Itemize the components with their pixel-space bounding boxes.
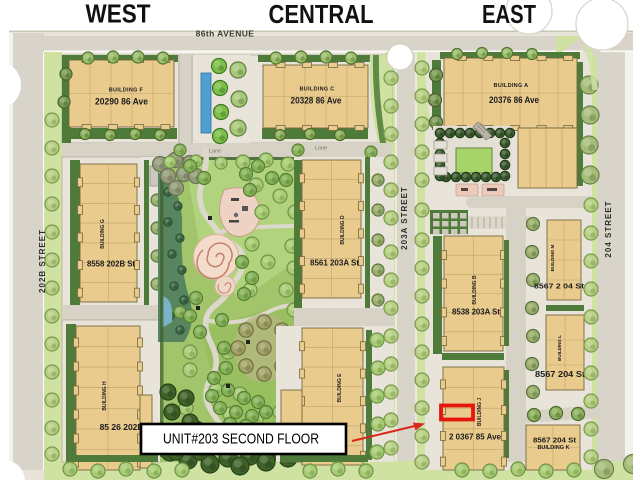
- svg-text:20328 86 Ave: 20328 86 Ave: [291, 96, 342, 107]
- svg-text:Lane: Lane: [315, 146, 327, 152]
- svg-text:BUILDING D: BUILDING D: [340, 215, 346, 245]
- svg-text:Lane: Lane: [209, 149, 221, 155]
- svg-text:8558 202B St: 8558 202B St: [87, 259, 135, 269]
- svg-text:BUILDING G: BUILDING G: [100, 219, 106, 249]
- svg-text:8538 203A St: 8538 203A St: [452, 307, 500, 317]
- svg-text:BUILDING C: BUILDING C: [299, 87, 334, 93]
- svg-text:BUILDING L: BUILDING L: [557, 335, 562, 361]
- svg-text:BUILDING B: BUILDING B: [472, 275, 478, 305]
- svg-text:20376 86 Ave: 20376 86 Ave: [489, 95, 539, 106]
- svg-text:BUILDING H: BUILDING H: [102, 381, 108, 411]
- svg-text:BUILDING J: BUILDING J: [477, 398, 483, 427]
- svg-text:203A STREET: 203A STREET: [400, 186, 409, 250]
- svg-text:8567 2 04 St: 8567 2 04 St: [534, 282, 585, 291]
- svg-text:UNIT#203 SECOND FLOOR: UNIT#203 SECOND FLOOR: [163, 431, 319, 448]
- svg-text:202B STREET: 202B STREET: [38, 229, 47, 293]
- svg-text:204 STREET: 204 STREET: [604, 200, 613, 257]
- svg-text:BUILDING E: BUILDING E: [337, 373, 343, 403]
- svg-text:BUILDING K: BUILDING K: [537, 445, 569, 451]
- svg-text:WEST: WEST: [86, 0, 151, 29]
- svg-text:8567 204 St: 8567 204 St: [535, 370, 585, 379]
- svg-text:BUILDING A: BUILDING A: [494, 83, 529, 89]
- svg-text:20290 86 Ave: 20290 86 Ave: [95, 97, 148, 108]
- svg-text:BUILDING M: BUILDING M: [550, 244, 555, 271]
- svg-text:2 0367 85 Ave: 2 0367 85 Ave: [449, 433, 502, 442]
- svg-text:86th AVENUE: 86th AVENUE: [196, 29, 255, 39]
- svg-text:8567 204 St: 8567 204 St: [533, 438, 577, 445]
- svg-text:CENTRAL: CENTRAL: [269, 0, 374, 29]
- svg-text:EAST: EAST: [482, 0, 536, 29]
- svg-text:BUILDING F: BUILDING F: [109, 88, 144, 94]
- svg-text:8561 203A St: 8561 203A St: [310, 258, 359, 268]
